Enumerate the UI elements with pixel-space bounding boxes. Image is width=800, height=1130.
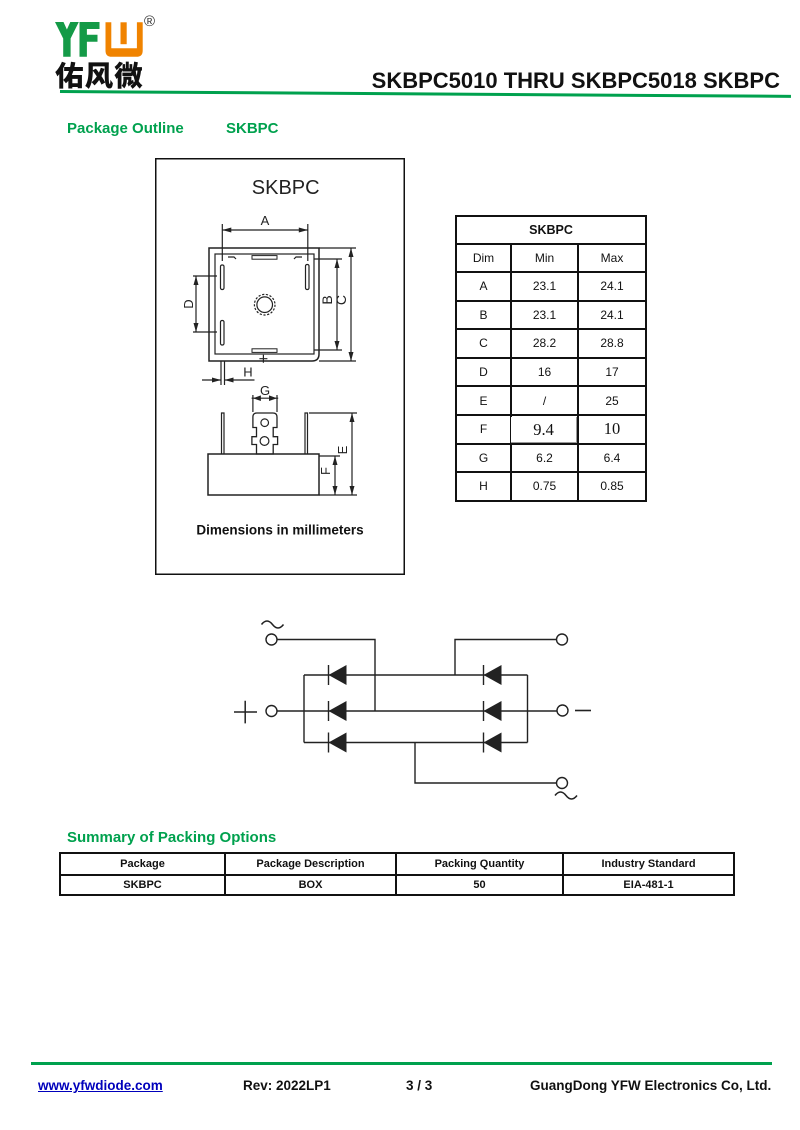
svg-text:D: D: [181, 299, 196, 308]
svg-text:SKBPC: SKBPC: [252, 177, 320, 199]
svg-text:A: A: [261, 213, 270, 228]
svg-text:C: C: [333, 295, 349, 305]
svg-text:Dimensions in millimeters: Dimensions in millimeters: [196, 523, 363, 538]
svg-text:F: F: [318, 467, 333, 475]
svg-text:E: E: [335, 445, 350, 454]
svg-text:H: H: [243, 365, 252, 380]
svg-text:G: G: [260, 383, 270, 398]
